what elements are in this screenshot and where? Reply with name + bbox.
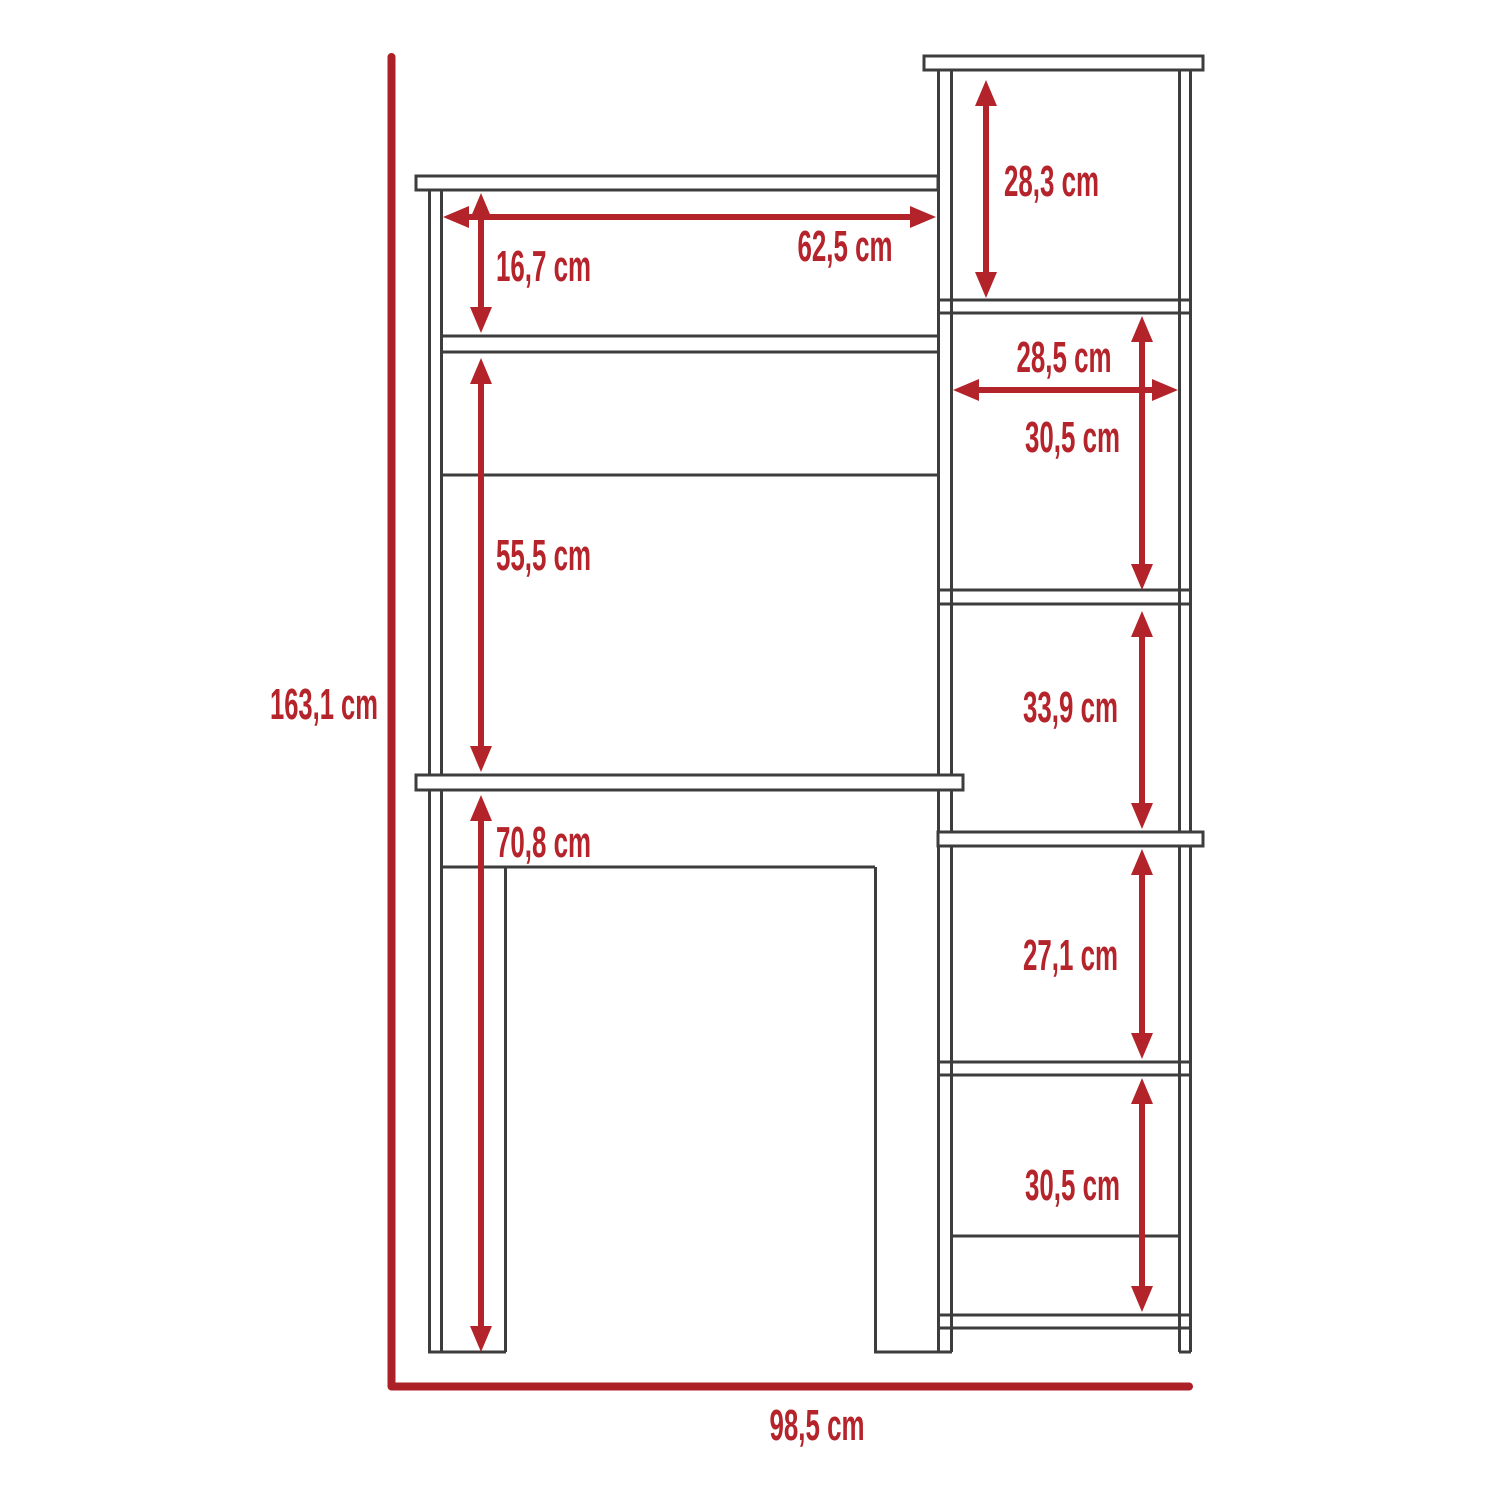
label-overall-height: 163,1 cm <box>270 680 378 729</box>
arrow-bookcase-shelf4-height <box>1131 849 1153 1059</box>
desk-top-board <box>416 775 963 790</box>
label-desk-underside-height: 70,8 cm <box>496 818 591 867</box>
bookcase-top-board <box>924 56 1203 70</box>
diagram-canvas: 163,1 cm 98,5 cm 62,5 cm 16,7 cm 55,5 cm… <box>0 0 1500 1500</box>
arrow-hutch-opening-height <box>470 358 492 772</box>
arrow-bookcase-shelf2-height <box>1131 316 1153 590</box>
furniture-dimension-diagram: 163,1 cm 98,5 cm 62,5 cm 16,7 cm 55,5 cm… <box>0 0 1500 1500</box>
label-bookcase-shelf4-height: 27,1 cm <box>1023 931 1118 980</box>
label-bookcase-shelf3-height: 33,9 cm <box>1023 683 1118 732</box>
label-hutch-top-shelf-height: 16,7 cm <box>496 242 591 291</box>
arrow-bookcase-top-shelf-height <box>975 80 997 298</box>
label-hutch-opening-height: 55,5 cm <box>496 531 591 580</box>
label-bookcase-shelf-width: 28,5 cm <box>1017 333 1112 382</box>
arrow-bookcase-shelf3-height <box>1131 611 1153 829</box>
label-overall-width: 98,5 cm <box>770 1401 865 1450</box>
label-bookcase-shelf5-height: 30,5 cm <box>1025 1161 1120 1210</box>
arrow-desk-underside-height <box>470 795 492 1352</box>
hutch-top-board <box>416 176 938 190</box>
label-hutch-opening-width: 62,5 cm <box>798 222 893 271</box>
bookcase-protruding-shelf-board <box>938 832 1203 846</box>
label-bookcase-shelf2-height: 30,5 cm <box>1025 413 1120 462</box>
arrow-bookcase-shelf5-height <box>1131 1078 1153 1312</box>
label-bookcase-top-shelf-height: 28,3 cm <box>1004 157 1099 206</box>
